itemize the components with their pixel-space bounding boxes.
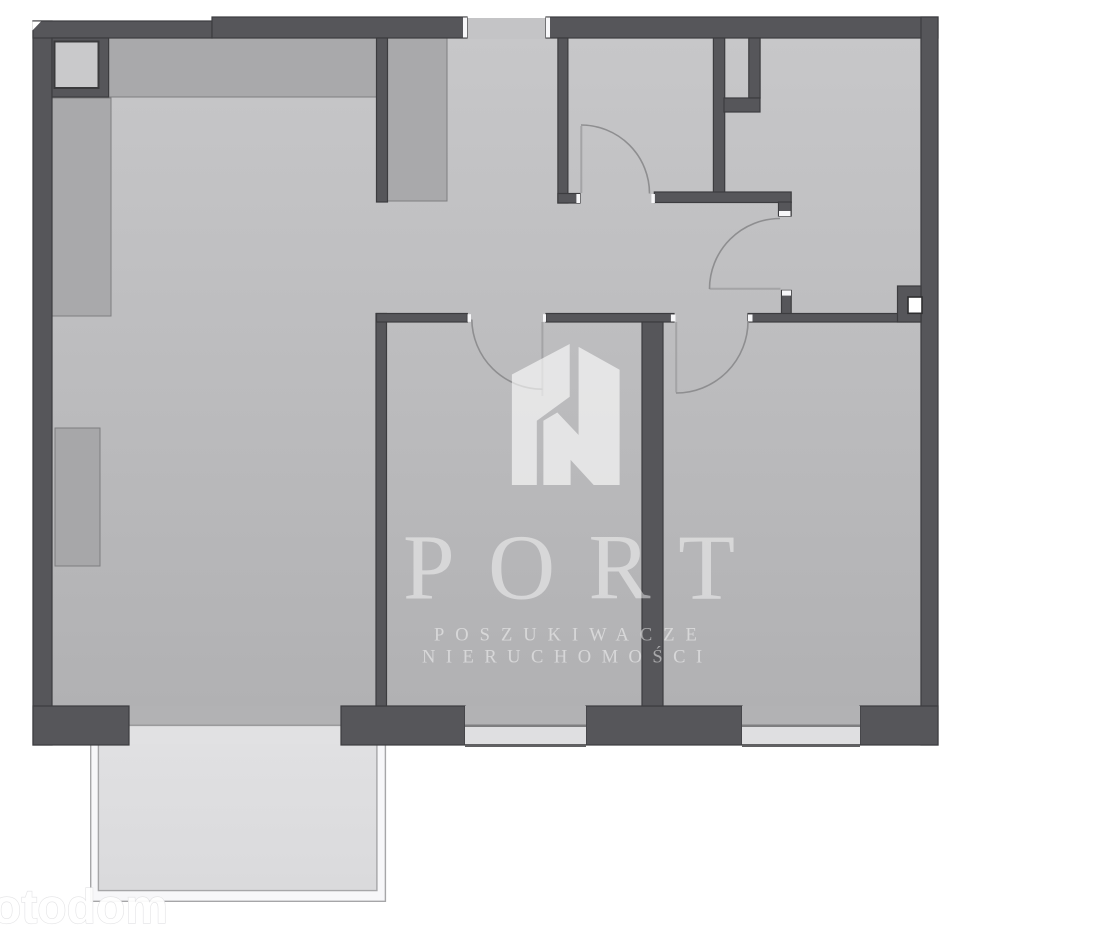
svg-text:otodom: otodom [0, 881, 168, 928]
svg-text:NIERUCHOMOŚCI: NIERUCHOMOŚCI [422, 646, 713, 668]
svg-text:POSZUKIWACZE: POSZUKIWACZE [434, 626, 708, 646]
svg-text:PORT: PORT [403, 517, 768, 620]
